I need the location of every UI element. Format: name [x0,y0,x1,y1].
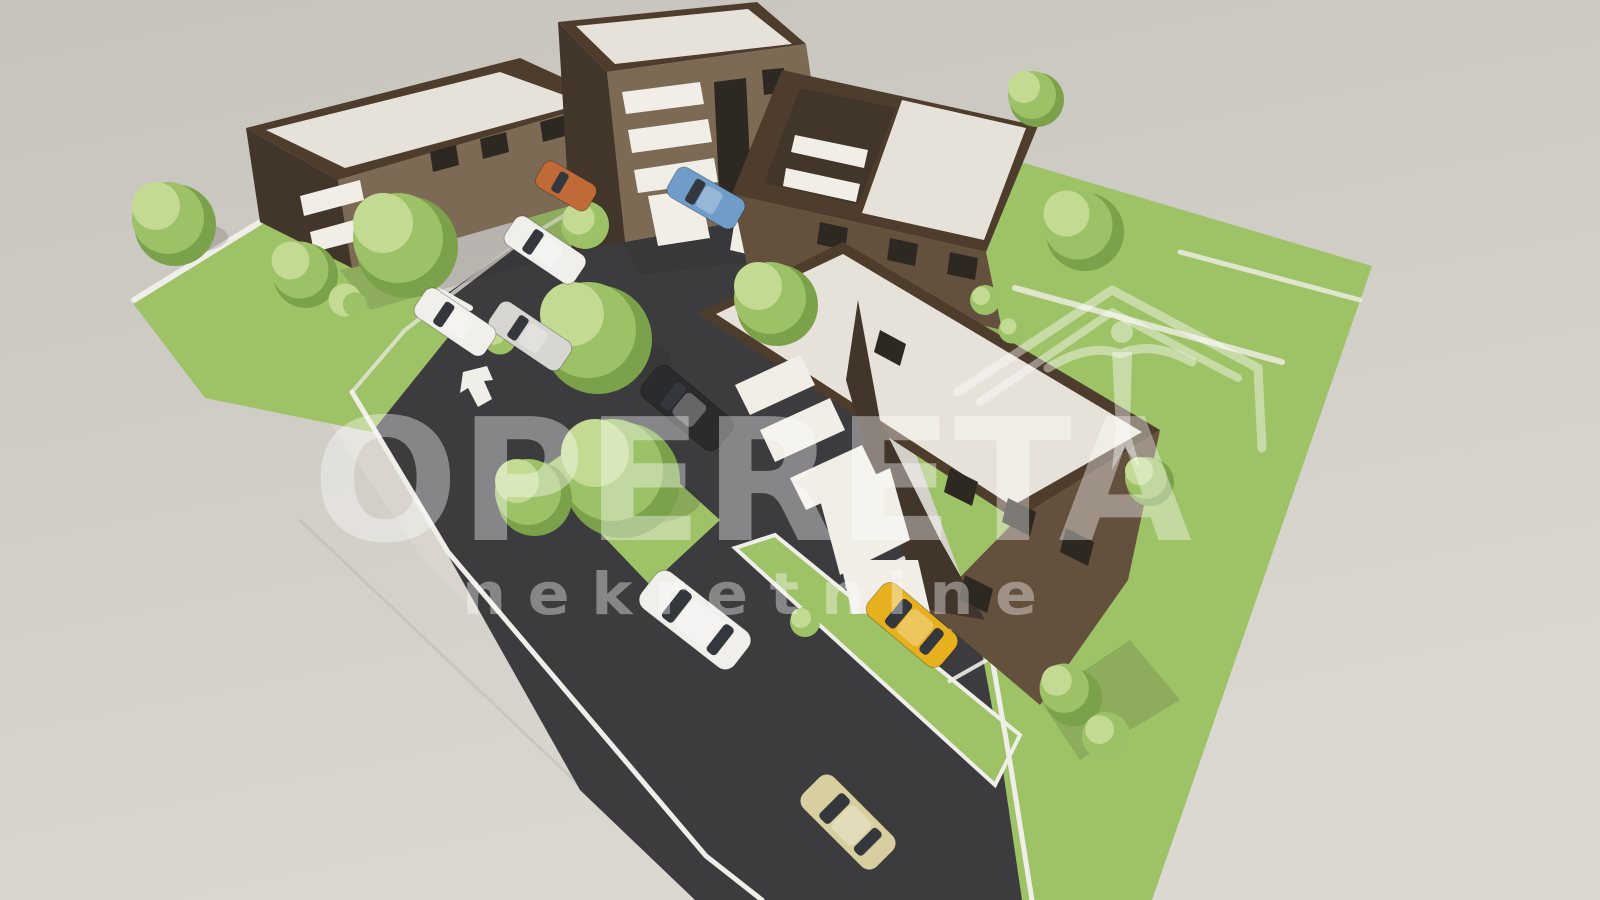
watermark-subtitle: n e k r e t n i n e [462,560,1037,628]
bush [999,317,1026,344]
bush [1082,712,1130,760]
site-plan-render: OPERETA n e k r e t n i n e [0,0,1600,900]
render-canvas: OPERETA n e k r e t n i n e [0,0,1600,900]
bush [970,285,1000,315]
watermark-brand: OPERETA [312,383,1192,581]
